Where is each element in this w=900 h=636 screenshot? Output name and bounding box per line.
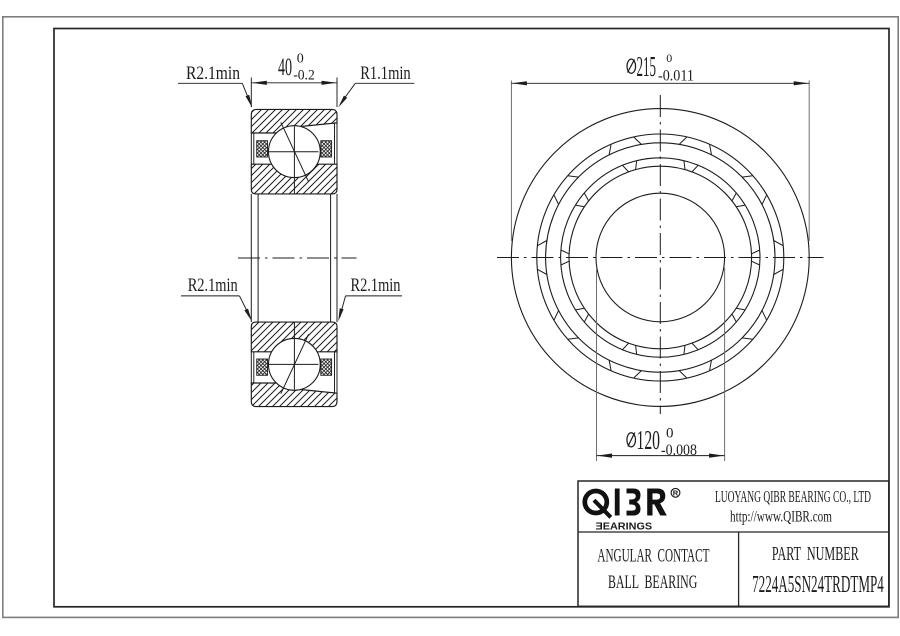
svg-text:ƎEARINGS: ƎEARINGS	[596, 521, 653, 532]
svg-text:http://www.QIBR.com: http://www.QIBR.com	[730, 509, 832, 526]
svg-text:R2.1min: R2.1min	[186, 64, 240, 84]
svg-text:120: 120	[637, 425, 661, 455]
svg-text:215: 215	[637, 52, 657, 83]
svg-text:ANGULAR CONTACT: ANGULAR CONTACT	[597, 545, 709, 566]
svg-text:LUOYANG QIBR BEARING CO., LTD: LUOYANG QIBR BEARING CO., LTD	[715, 487, 871, 506]
svg-text:-0.011: -0.011	[658, 68, 694, 85]
svg-text:R2.1min: R2.1min	[188, 276, 238, 296]
svg-text:R: R	[673, 489, 679, 498]
svg-text:0: 0	[666, 426, 674, 442]
svg-text:BALL BEARING: BALL BEARING	[608, 572, 697, 593]
svg-text:40: 40	[278, 54, 292, 81]
svg-text:0: 0	[297, 51, 304, 66]
svg-text:PART NUMBER: PART NUMBER	[772, 543, 859, 565]
svg-text:-0.008: -0.008	[661, 442, 697, 459]
svg-text:-0.2: -0.2	[293, 67, 315, 83]
svg-text:R2.1min: R2.1min	[351, 276, 401, 296]
svg-text:0: 0	[666, 51, 672, 65]
svg-text:R1.1min: R1.1min	[360, 64, 411, 84]
svg-text:7224A5SN24TRDTMP4: 7224A5SN24TRDTMP4	[752, 572, 884, 598]
